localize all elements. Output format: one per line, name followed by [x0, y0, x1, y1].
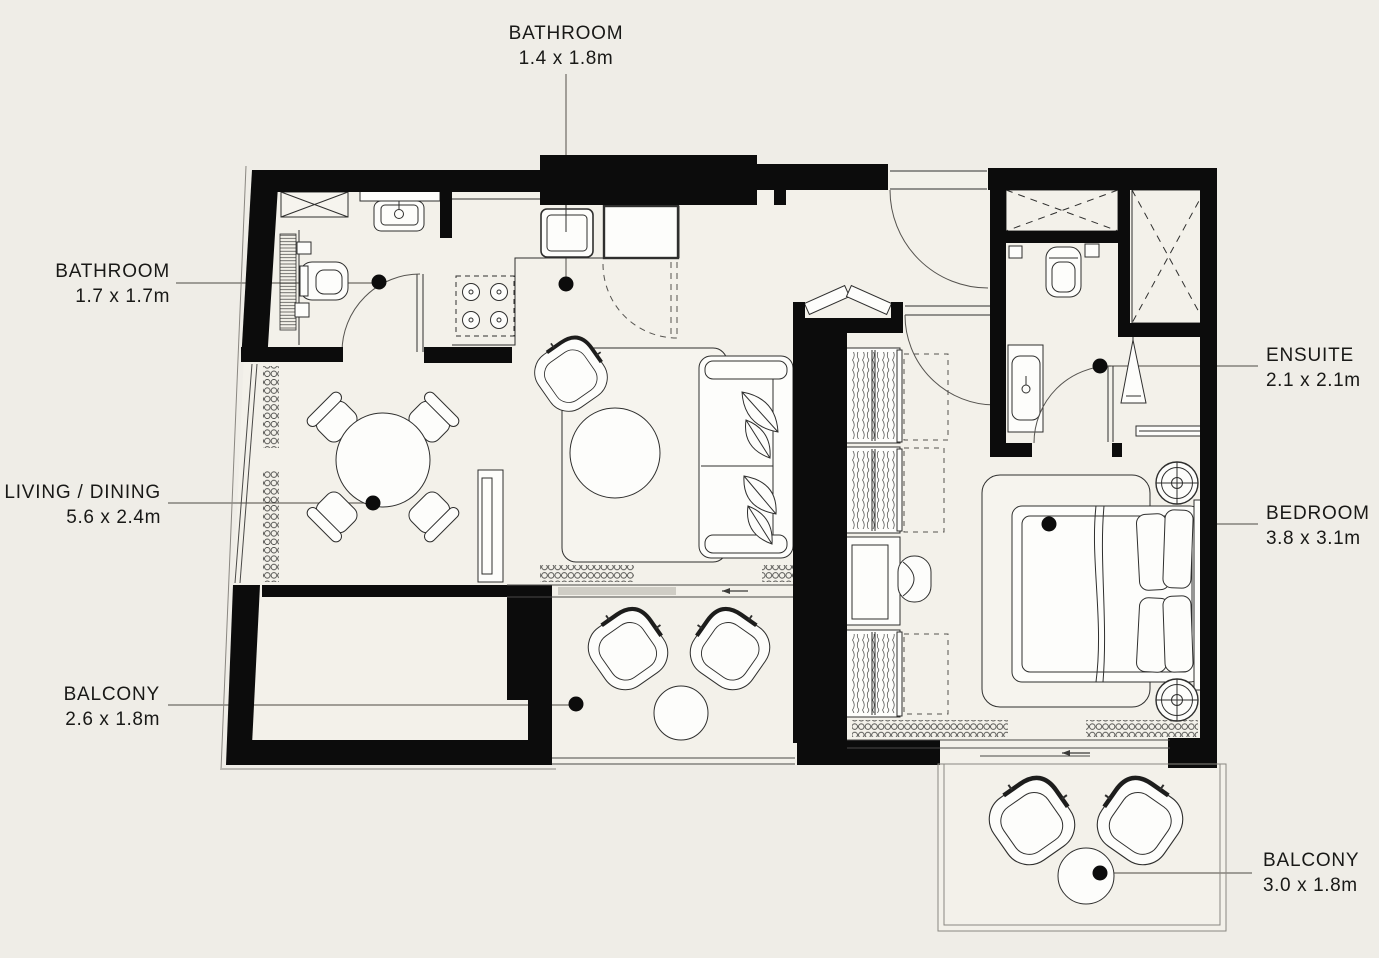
- label-bathroom-left: BATHROOM 1.7 x 1.7m: [55, 259, 170, 309]
- marker-ensuite: [1093, 359, 1108, 374]
- label-balcony-left: BALCONY 2.6 x 1.8m: [64, 682, 160, 732]
- label-ensuite: ENSUITE 2.1 x 2.1m: [1266, 343, 1361, 393]
- room-dims: 3.0 x 1.8m: [1263, 873, 1359, 898]
- nightstand-icon: [1156, 462, 1198, 504]
- bed-icon: [1012, 500, 1202, 690]
- label-balcony-right: BALCONY 3.0 x 1.8m: [1263, 848, 1359, 898]
- nightstand-icon: [1156, 679, 1198, 721]
- bedroom: [982, 462, 1202, 721]
- radiator-icon: [280, 230, 299, 345]
- sofa-icon: [699, 356, 793, 558]
- bench-icon: [1136, 426, 1203, 436]
- room-name: BATHROOM: [55, 259, 170, 284]
- marker-bathroom-left: [372, 275, 387, 290]
- room-name: ENSUITE: [1266, 343, 1361, 368]
- side-table-icon: [654, 686, 708, 740]
- wardrobe-icon: [846, 630, 902, 717]
- label-living-dining: LIVING / DINING 5.6 x 2.4m: [4, 480, 161, 530]
- marker-bathroom-top: [559, 277, 574, 292]
- marker-balcony-right: [1093, 866, 1108, 881]
- room-dims: 3.8 x 3.1m: [1266, 526, 1370, 551]
- shower-icon: [281, 192, 348, 217]
- marker-balcony-left: [569, 697, 584, 712]
- tv-console-icon: [478, 470, 503, 582]
- room-name: LIVING / DINING: [4, 480, 161, 505]
- room-dims: 2.6 x 1.8m: [64, 707, 160, 732]
- marker-living-dining: [366, 496, 381, 511]
- room-dims: 5.6 x 2.4m: [4, 505, 161, 530]
- room-dims: 2.1 x 2.1m: [1266, 368, 1361, 393]
- room-name: BATHROOM: [509, 21, 624, 46]
- label-bathroom-top: BATHROOM 1.4 x 1.8m: [509, 21, 624, 71]
- wardrobe-icon: [846, 348, 902, 443]
- room-dims: 1.4 x 1.8m: [509, 46, 624, 71]
- label-bedroom: BEDROOM 3.8 x 3.1m: [1266, 501, 1370, 551]
- wardrobe-icon: [846, 447, 902, 533]
- marker-bedroom: [1042, 517, 1057, 532]
- sliding-door-panel: [558, 587, 676, 595]
- round-rug: [570, 408, 660, 498]
- room-name: BALCONY: [1263, 848, 1359, 873]
- floor-plan-svg: [0, 0, 1379, 958]
- room-name: BEDROOM: [1266, 501, 1370, 526]
- room-name: BALCONY: [64, 682, 160, 707]
- room-dims: 1.7 x 1.7m: [55, 284, 170, 309]
- fridge-icon: [604, 206, 678, 258]
- floor-plan-page: BATHROOM 1.4 x 1.8m BATHROOM 1.7 x 1.7m …: [0, 0, 1379, 958]
